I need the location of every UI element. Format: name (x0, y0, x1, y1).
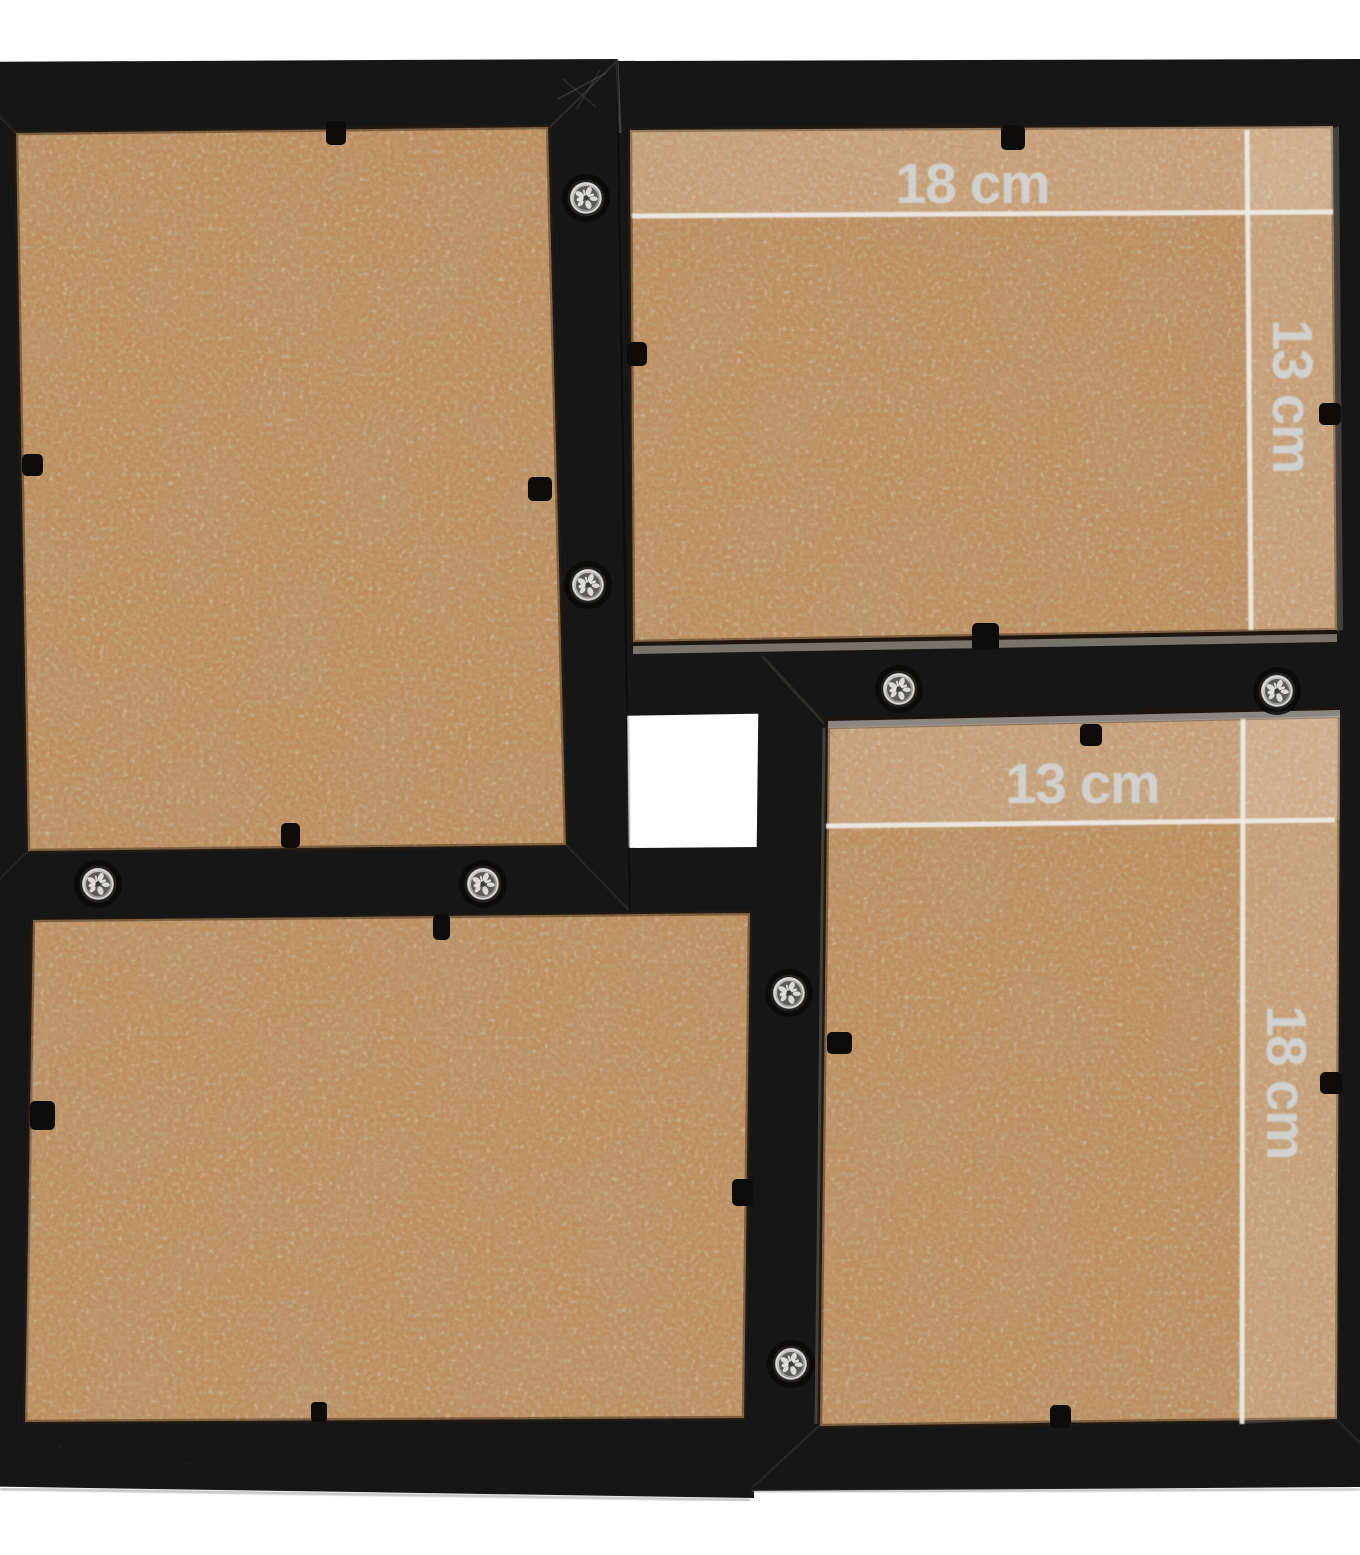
svg-text:13 cm: 13 cm (1260, 319, 1324, 473)
svg-text:13 cm: 13 cm (1005, 752, 1159, 816)
svg-text:18 cm: 18 cm (895, 152, 1049, 216)
svg-text:18 cm: 18 cm (1254, 1005, 1318, 1159)
